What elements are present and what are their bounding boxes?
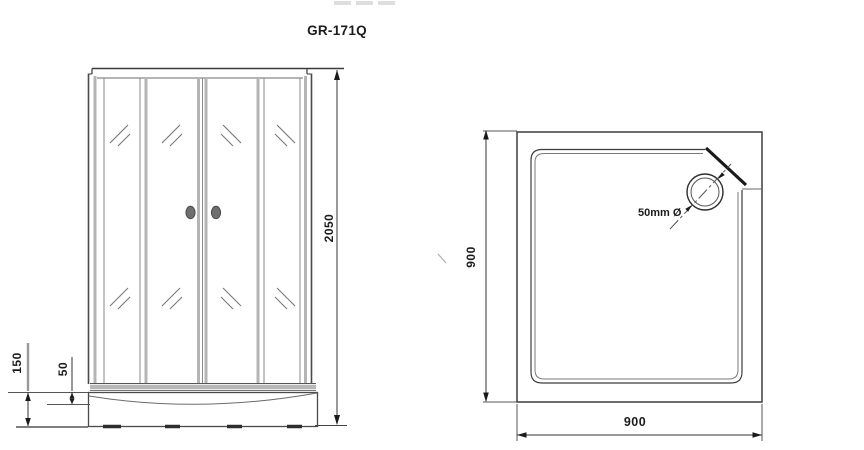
front-view: 2050 150 50 [8,69,347,428]
model-title: GR-171Q [307,23,367,38]
tray-front-curve [89,393,317,404]
technical-drawing-page: GR-171Q [0,0,864,450]
arrow-down-icon [70,399,75,404]
arrow-down-icon [483,393,489,403]
dimension-tray-depth: 50 [47,357,90,405]
arrow-left-icon [517,432,527,438]
drawing-canvas: GR-171Q [0,0,864,450]
door-knobs [186,206,221,218]
tray-inner-basin [531,148,763,383]
drain: 50mm Ø [638,164,731,229]
arrow-icon [685,205,692,212]
bottom-rail [90,384,316,391]
tray-outer-edge [517,132,762,402]
stray-tick-artifact [438,254,446,263]
arrow-up-icon [25,393,31,402]
arrow-right-icon [753,432,763,438]
plan-width-dim-label: 900 [624,415,646,429]
arrow-up-icon [70,393,75,399]
left-door-knob [186,206,195,218]
arrow-down-icon [25,418,31,427]
arrow-down-icon [334,415,340,425]
arrow-up-icon [334,70,340,80]
frame-and-stiles [89,74,312,385]
dimension-plan-width: 900 [517,404,762,441]
height-dim-label: 2050 [322,214,336,243]
tray-base [89,393,318,427]
dimension-overall-height: 2050 [315,70,347,426]
dimension-plan-depth: 900 [464,130,517,402]
tray-height-dim-label: 150 [10,352,24,374]
plan-depth-dim-label: 900 [464,246,478,268]
tray-depth-dim-label: 50 [56,362,70,376]
plan-view: 50mm Ø 900 900 [438,130,763,441]
arrow-icon [718,172,725,179]
dimension-tray-height: 150 [8,343,88,427]
drain-diameter-label: 50mm Ø [638,207,682,219]
right-door-knob [211,206,220,218]
